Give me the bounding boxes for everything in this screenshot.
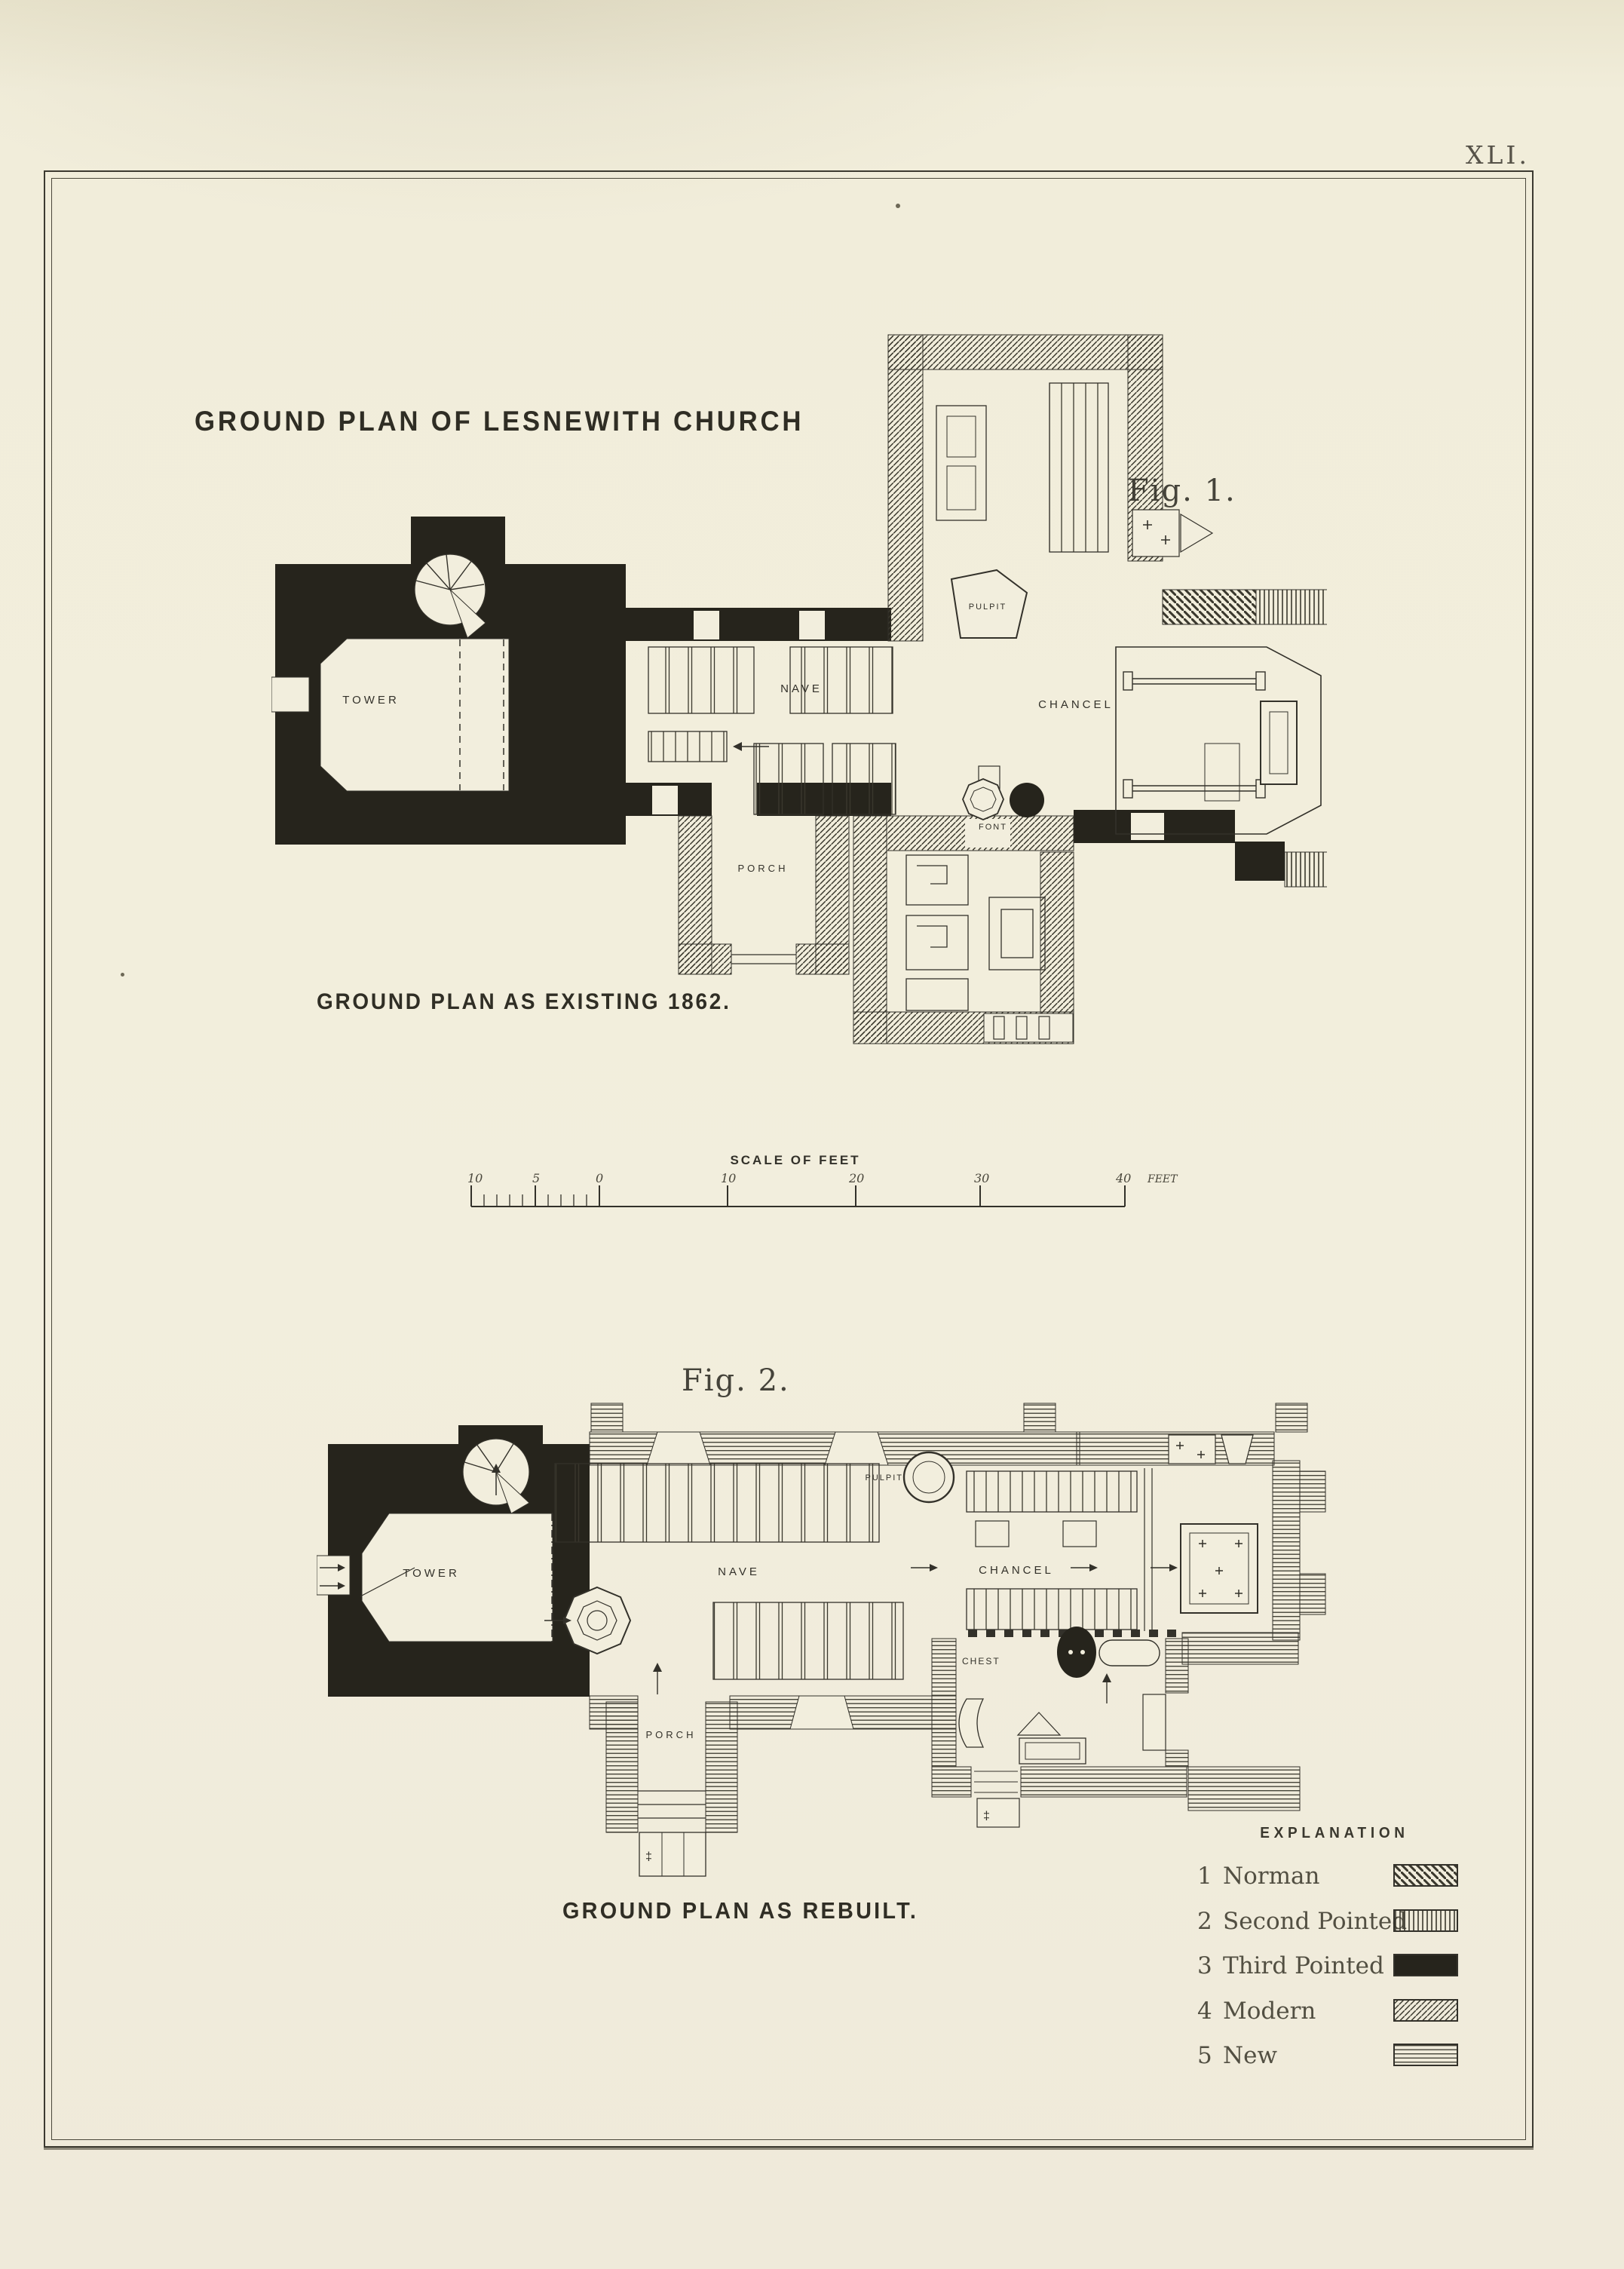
- legend-swatch-third-pointed: [1393, 1954, 1458, 1976]
- fig2-tower-label: TOWER: [403, 1567, 460, 1580]
- fig1-nave-label: NAVE: [780, 682, 823, 695]
- step-cross-mark: ‡: [645, 1850, 652, 1863]
- legend-label: New: [1223, 2042, 1277, 2069]
- legend-row-new: 5 New: [1176, 2042, 1500, 2072]
- fig2-nave-label: NAVE: [718, 1565, 760, 1578]
- scale-numbers: 10 5 0 10 20 30 40 FEET: [467, 1171, 1178, 1185]
- legend-title: EXPLANATION: [1184, 1825, 1485, 1842]
- fig1-baluster-rail: [984, 1013, 1073, 1042]
- fig2-altar: [1181, 1524, 1258, 1613]
- legend-row-modern: 4 Modern: [1176, 1998, 1500, 2028]
- fig1-tower-label: TOWER: [342, 694, 400, 707]
- fig1-transept-furnishings: [936, 383, 1212, 557]
- fig2-vestry-block: [1169, 1435, 1253, 1464]
- legend-number: 4: [1197, 1998, 1212, 2025]
- plate-number: XLI.: [1466, 140, 1530, 170]
- up-arrow-icon: [653, 1663, 662, 1672]
- right-arrow-icon: [1169, 1564, 1178, 1571]
- scale-tick-label: 0: [596, 1171, 603, 1185]
- scale-tick-label: 40: [1115, 1171, 1131, 1185]
- fig2-label: Fig. 2.: [682, 1363, 790, 1398]
- fig2-stove: [1057, 1627, 1096, 1678]
- fig2-caption: GROUND PLAN AS REBUILT.: [562, 1897, 918, 1924]
- fig1-chapel-box-pews: [906, 855, 1045, 1010]
- fig2-porch: ‡: [638, 1663, 706, 1876]
- legend-number: 1: [1197, 1863, 1212, 1890]
- legend-number: 2: [1197, 1908, 1212, 1935]
- ink-speck: [896, 204, 900, 208]
- fig1-porch-steps: [731, 955, 796, 964]
- fig1-chancel-label: CHANCEL: [1038, 698, 1114, 711]
- right-arrow-icon: [930, 1564, 938, 1571]
- legend-row-second-pointed: 2 Second Pointed: [1176, 1908, 1500, 1938]
- legend-number: 3: [1197, 1952, 1212, 1979]
- fig1-norman-wall: [1163, 590, 1256, 624]
- scale-tick-label: 30: [974, 1171, 989, 1185]
- fig1-tomb: [1205, 744, 1239, 801]
- legend-swatch-second-pointed: [1393, 1909, 1458, 1932]
- fig2-ground-plan: ‡: [317, 1399, 1327, 1896]
- step-cross-mark: ‡: [983, 1810, 990, 1823]
- fig2-curved-pew: [959, 1699, 983, 1747]
- fig2-chapel-steps: [974, 1771, 1018, 1792]
- fig1-font-bowl: [1010, 783, 1044, 817]
- legend-label: Second Pointed: [1223, 1908, 1407, 1935]
- scale-tick-label: 20: [848, 1171, 864, 1185]
- fig2-north-pews: [555, 1464, 879, 1542]
- scale-tick-label: 10: [467, 1171, 483, 1185]
- legend-label: Norman: [1223, 1863, 1319, 1890]
- scale-tick-label: 10: [721, 1171, 736, 1185]
- legend-row-third-pointed: 3 Third Pointed: [1176, 1952, 1500, 1982]
- fig1-pulpit-label: PULPIT: [969, 603, 1007, 612]
- fig2-pulpit: [904, 1452, 954, 1502]
- scale-tick-label: 5: [532, 1171, 540, 1185]
- fig1-modern-walls: [679, 335, 1327, 1044]
- fig1-window-gaps: [652, 611, 1164, 840]
- fig1-font: [963, 779, 1044, 820]
- fig2-pulpit-label: PULPIT: [865, 1473, 903, 1483]
- legend-swatch-new: [1393, 2044, 1458, 2066]
- scale-ticks: [471, 1185, 1125, 1207]
- fig1-rood-stairs: [648, 731, 727, 762]
- fig1-font-label: FONT: [979, 823, 1007, 832]
- legend-number: 5: [1197, 2042, 1212, 2069]
- fig2-choir-stalls: [967, 1468, 1152, 1631]
- ink-speck: [121, 973, 124, 977]
- scale-of-feet-bar: SCALE OF FEET 10 5 0 10 20 30 40 FEET: [452, 1148, 1191, 1219]
- right-arrow-icon: [1089, 1564, 1098, 1571]
- fig1-pulpit: PULPIT: [951, 570, 1027, 638]
- fig2-south-pews: [713, 1602, 903, 1679]
- scale-title: SCALE OF FEET: [730, 1153, 860, 1167]
- fig2-chest-label: CHEST: [962, 1656, 1000, 1666]
- fig1-altar: [1261, 701, 1297, 784]
- fig2-porch-label: PORCH: [646, 1729, 697, 1740]
- legend-swatch-norman: [1393, 1864, 1458, 1887]
- scale-unit-label: FEET: [1147, 1173, 1178, 1185]
- legend-row-norman: 1 Norman: [1176, 1863, 1500, 1893]
- fig1-porch-label: PORCH: [738, 863, 789, 874]
- legend-swatch-modern: [1393, 1999, 1458, 2022]
- fig2-chancel-label: CHANCEL: [979, 1564, 1054, 1577]
- engraved-plate-page: XLI. GROUND PLAN OF LESNEWITH CHURCH Fig…: [0, 0, 1624, 2269]
- legend-label: Third Pointed: [1223, 1952, 1384, 1979]
- up-arrow-icon: [1102, 1673, 1111, 1682]
- legend-label: Modern: [1223, 1998, 1316, 2025]
- fig1-ground-plan: PULPIT TOWER: [271, 324, 1327, 1056]
- fig1-communion-rails: [1123, 672, 1265, 798]
